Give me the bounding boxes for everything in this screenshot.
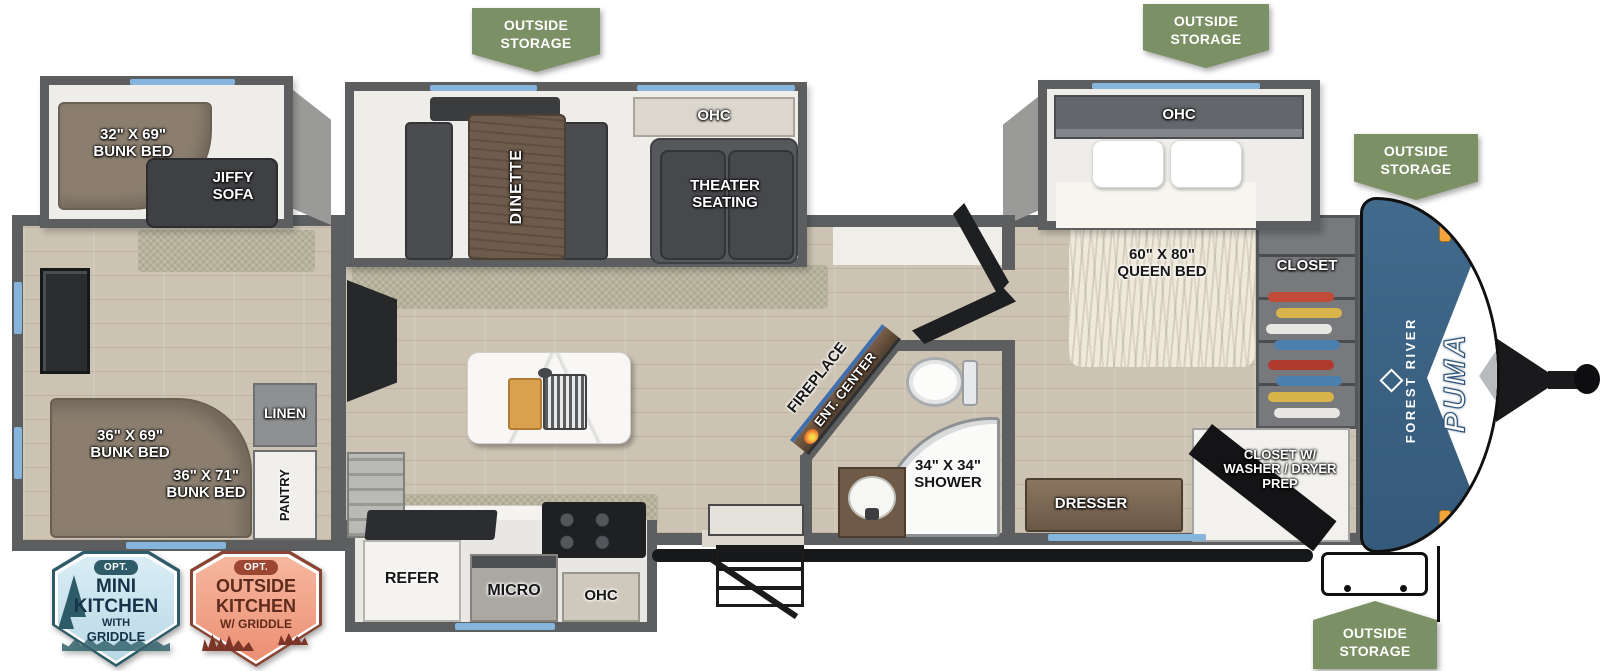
front-step-box <box>1321 552 1428 596</box>
jiffy-sofa-label: JIFFY SOFA <box>188 170 278 203</box>
bedroom-wall-upper <box>1002 215 1015 270</box>
bunk-bed-36x71-label: 36" X 71" BUNK BED <box>146 468 266 501</box>
shower-label: 34" X 34" SHOWER <box>898 458 998 491</box>
dinette-bench <box>560 122 608 260</box>
outside-storage-badge: OUTSIDE STORAGE <box>1143 4 1269 68</box>
outside-storage-label: OUTSIDE STORAGE <box>472 17 600 52</box>
window <box>130 79 235 85</box>
pillow <box>1170 140 1242 188</box>
outside-kitchen-line1: OUTSIDE <box>216 577 296 597</box>
entry-landing <box>708 504 804 536</box>
window <box>14 427 22 479</box>
mini-kitchen-line1: MINI <box>96 577 136 597</box>
dinette-label: DINETTE <box>508 127 526 247</box>
outside-storage-label: OUTSIDE STORAGE <box>1313 625 1437 660</box>
window <box>637 85 795 91</box>
outside-kitchen-line3: W/ GRIDDLE <box>220 617 292 633</box>
theater-seating-label: THEATER SEATING <box>655 178 795 211</box>
living-carpet <box>352 265 828 309</box>
toilet-tank <box>962 360 978 406</box>
griddle <box>364 510 497 540</box>
bunk-bed-32x69-label: 32" X 69" BUNK BED <box>72 127 194 160</box>
power-cord <box>1437 546 1440 622</box>
bed-sheet <box>1056 182 1256 228</box>
theater-ohc-label: OHC <box>633 108 795 125</box>
island-faucet <box>538 368 552 378</box>
linen-label: LINEN <box>249 406 321 421</box>
outside-storage-badge: OUTSIDE STORAGE <box>472 8 600 72</box>
micro-label: MICRO <box>470 582 558 600</box>
closet-label: CLOSET <box>1256 258 1358 275</box>
bedroom-ohc-label: OHC <box>1054 107 1304 124</box>
outside-storage-label: OUTSIDE STORAGE <box>1354 143 1478 178</box>
opt-pill: OPT. <box>94 560 138 575</box>
hitch-coupler <box>1574 364 1600 394</box>
step-box-pin <box>1400 585 1407 592</box>
queen-bed-label: 60" X 80" QUEEN BED <box>1082 247 1242 280</box>
kitchen-ohc-label: OHC <box>562 588 640 605</box>
bunkhouse-tv <box>40 268 90 374</box>
cutting-board <box>508 378 542 430</box>
window <box>126 542 226 549</box>
entry-steps <box>716 545 804 607</box>
marker-light <box>1439 224 1451 242</box>
divider-wall <box>331 215 346 551</box>
slide-shadow <box>1003 96 1039 226</box>
bath-faucet <box>865 508 879 520</box>
dinette-bench <box>405 122 453 260</box>
living-tv <box>347 280 397 402</box>
mini-kitchen-badge: OPT. MINI KITCHEN WITH GRIDDLE <box>52 551 180 667</box>
window <box>1092 83 1260 89</box>
washer-dryer-label: CLOSET W/ WASHER / DRYER PREP <box>1204 448 1356 491</box>
brand-model-label: PUMA <box>1439 283 1472 483</box>
slide-shadow <box>293 90 331 225</box>
window <box>455 623 555 630</box>
outside-kitchen-line2: KITCHEN <box>216 597 296 617</box>
brand-maker-label: FOREST RIVER <box>1404 250 1418 510</box>
dresser-label: DRESSER <box>1030 496 1152 513</box>
cooktop-stove <box>542 502 646 558</box>
bunkhouse-carpet <box>138 230 315 272</box>
pillow <box>1092 140 1164 188</box>
marker-light <box>1439 510 1451 528</box>
window <box>1048 534 1206 541</box>
toilet <box>906 357 964 407</box>
opt-pill: OPT. <box>234 560 278 575</box>
floorplan: 32" X 69" BUNK BED JIFFY SOFA 36" X 69" … <box>0 0 1600 671</box>
forest-river-logo-icon <box>1379 368 1403 392</box>
bath-wall-top <box>890 340 1012 351</box>
closet-clothes <box>1264 290 1350 426</box>
window <box>430 85 537 91</box>
pantry-label: PANTRY <box>278 450 292 540</box>
outside-storage-label: OUTSIDE STORAGE <box>1143 13 1269 48</box>
front-cap: FOREST RIVER PUMA <box>1360 197 1500 553</box>
bunk-bed-36x69-label: 36" X 69" BUNK BED <box>72 428 188 461</box>
window <box>14 282 22 334</box>
mini-kitchen-line2: KITCHEN <box>74 597 158 617</box>
outside-storage-badge: OUTSIDE STORAGE <box>1313 601 1437 669</box>
island-sink-cover <box>543 374 587 430</box>
step-box-pin <box>1344 585 1351 592</box>
bedroom-wall-lower <box>1002 340 1015 545</box>
mini-kitchen-line4: GRIDDLE <box>87 630 146 644</box>
outside-kitchen-badge: OPT. OUTSIDE KITCHEN W/ GRIDDLE <box>190 551 322 667</box>
refer-label: REFER <box>363 570 461 588</box>
outside-storage-badge: OUTSIDE STORAGE <box>1354 134 1478 200</box>
